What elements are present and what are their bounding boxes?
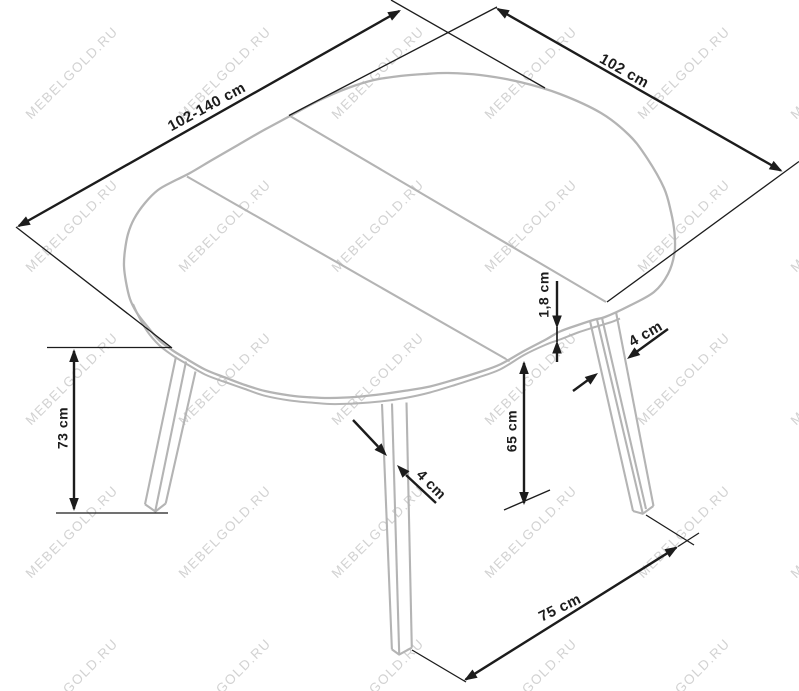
svg-text:65 cm: 65 cm (504, 410, 520, 452)
svg-text:73 cm: 73 cm (55, 407, 71, 449)
svg-text:1,8 cm: 1,8 cm (536, 271, 552, 318)
